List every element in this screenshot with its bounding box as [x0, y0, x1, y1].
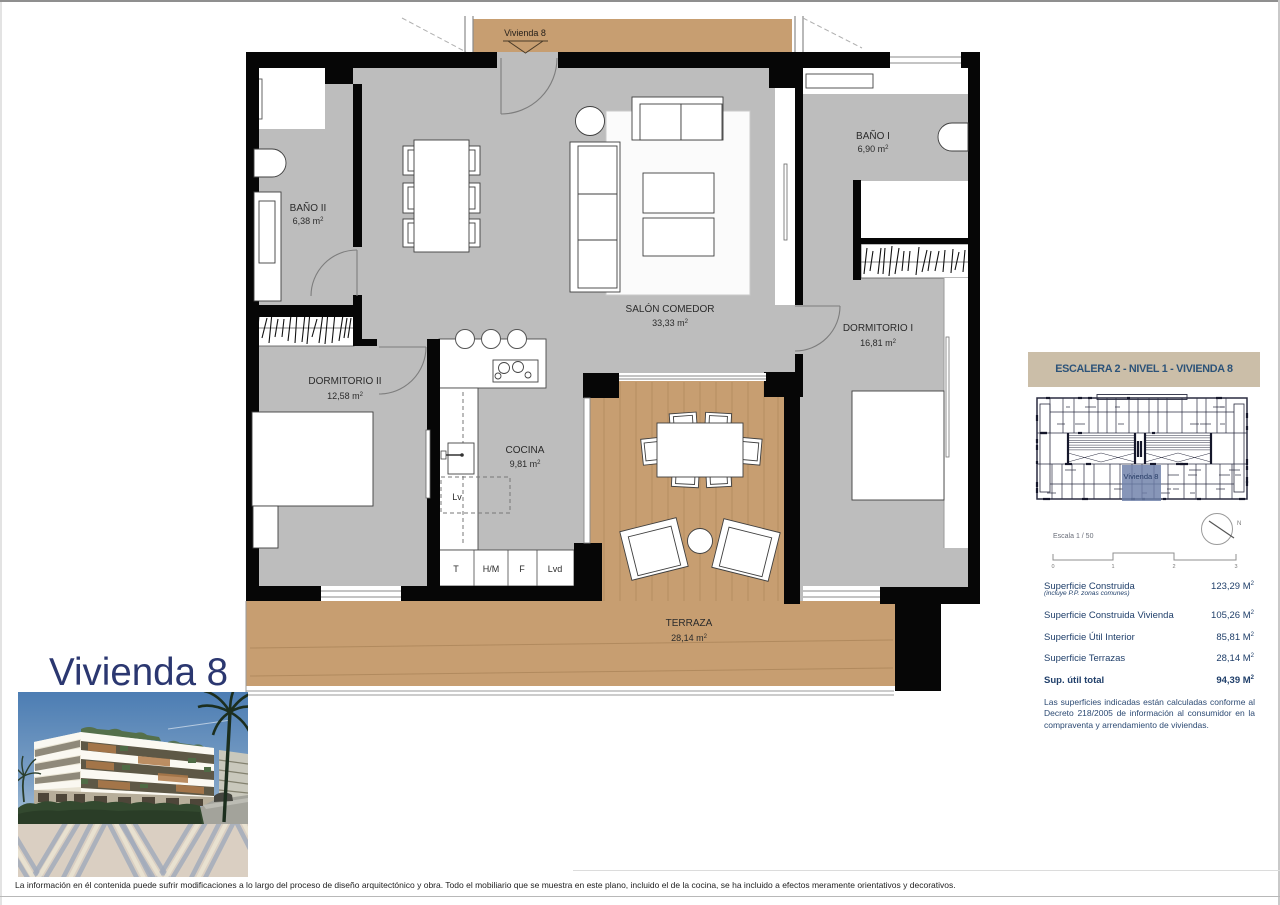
svg-text:2: 2: [1172, 564, 1175, 570]
svg-text:6,38 m2: 6,38 m2: [293, 216, 325, 226]
svg-text:F: F: [519, 564, 525, 574]
svg-text:6,90 m2: 6,90 m2: [858, 144, 890, 154]
svg-text:DORMITORIO II: DORMITORIO II: [308, 376, 381, 387]
svg-text:12,58 m2: 12,58 m2: [327, 391, 364, 401]
svg-text:TERRAZA: TERRAZA: [666, 618, 713, 629]
svg-text:28,14 m2: 28,14 m2: [671, 633, 708, 643]
svg-text:3: 3: [1234, 564, 1237, 570]
svg-text:Vivienda 8: Vivienda 8: [504, 28, 546, 38]
svg-text:BAÑO I: BAÑO I: [856, 129, 890, 142]
svg-text:H/M: H/M: [483, 564, 500, 574]
svg-text:SALÓN COMEDOR: SALÓN COMEDOR: [626, 302, 715, 315]
svg-text:Lv: Lv: [452, 492, 462, 502]
svg-text:1: 1: [1111, 564, 1114, 570]
svg-text:33,33 m2: 33,33 m2: [652, 318, 689, 328]
svg-text:Lvd: Lvd: [548, 564, 563, 574]
svg-text:COCINA: COCINA: [506, 445, 545, 456]
svg-text:DORMITORIO I: DORMITORIO I: [843, 323, 913, 334]
svg-text:Vivienda 8: Vivienda 8: [1124, 472, 1159, 481]
svg-text:0: 0: [1051, 564, 1054, 570]
svg-text:BAÑO II: BAÑO II: [290, 201, 327, 214]
svg-text:T: T: [453, 564, 459, 574]
svg-text:9,81 m2: 9,81 m2: [510, 459, 542, 469]
svg-text:Escala 1 / 50: Escala 1 / 50: [1053, 533, 1094, 540]
svg-text:16,81 m2: 16,81 m2: [860, 338, 897, 348]
svg-text:N: N: [1237, 521, 1241, 527]
